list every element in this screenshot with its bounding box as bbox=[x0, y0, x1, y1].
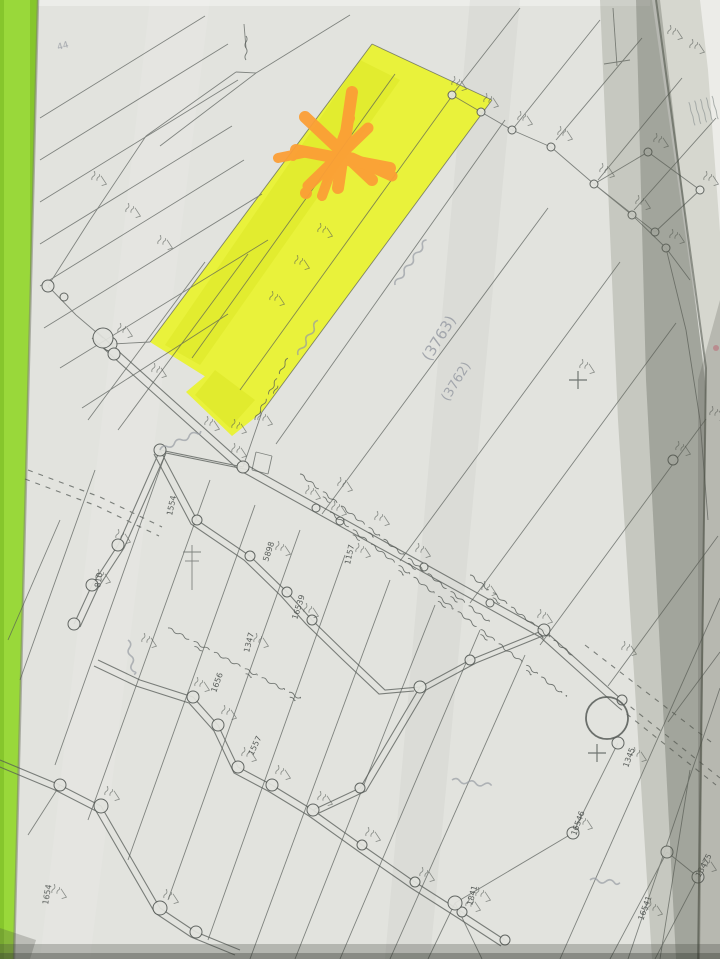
survey-marker-circle bbox=[307, 615, 317, 625]
survey-marker-circle bbox=[94, 799, 108, 813]
survey-marker-circle bbox=[477, 108, 485, 116]
survey-marker-circle bbox=[108, 348, 120, 360]
survey-marker-circle bbox=[190, 926, 202, 938]
survey-marker-circle bbox=[187, 691, 199, 703]
survey-marker-circle bbox=[307, 804, 319, 816]
survey-marker-circle bbox=[93, 328, 113, 348]
survey-marker-circle bbox=[266, 779, 278, 791]
survey-marker-circle bbox=[192, 515, 202, 525]
survey-marker-circle bbox=[68, 618, 80, 630]
survey-marker-circle bbox=[282, 587, 292, 597]
survey-marker-circle bbox=[696, 186, 704, 194]
paper-top-glare bbox=[38, 0, 650, 6]
survey-marker-circle bbox=[212, 719, 224, 731]
survey-marker-circle bbox=[42, 280, 54, 292]
survey-marker-circle bbox=[508, 126, 516, 134]
survey-marker-circle bbox=[414, 681, 426, 693]
survey-marker-circle bbox=[60, 293, 68, 301]
map-canvas: 1157155481058981653913471557165461841134… bbox=[0, 0, 720, 959]
survey-marker-circle bbox=[500, 935, 510, 945]
survey-marker-circle bbox=[355, 783, 365, 793]
marker-dot bbox=[289, 153, 297, 161]
survey-marker-circle bbox=[312, 504, 320, 512]
survey-marker-circle bbox=[590, 180, 598, 188]
survey-marker-circle bbox=[54, 779, 66, 791]
marker-dot bbox=[300, 187, 312, 199]
photo-of-cadastral-map: 1157155481058981653913471557165461841134… bbox=[0, 0, 720, 959]
survey-marker-circle bbox=[448, 91, 456, 99]
survey-marker-circle bbox=[237, 461, 249, 473]
survey-marker-circle bbox=[357, 840, 367, 850]
survey-marker-circle bbox=[448, 896, 462, 910]
survey-marker-circle bbox=[486, 599, 494, 607]
survey-marker-circle bbox=[410, 877, 420, 887]
survey-marker-circle bbox=[232, 761, 244, 773]
survey-marker-circle bbox=[153, 901, 167, 915]
lower-right-shade bbox=[698, 300, 720, 959]
survey-marker-circle bbox=[465, 655, 475, 665]
survey-marker-circle bbox=[245, 551, 255, 561]
survey-marker-circle bbox=[112, 539, 124, 551]
bottom-edge-shadow-dark bbox=[0, 953, 720, 959]
survey-marker-circle bbox=[547, 143, 555, 151]
